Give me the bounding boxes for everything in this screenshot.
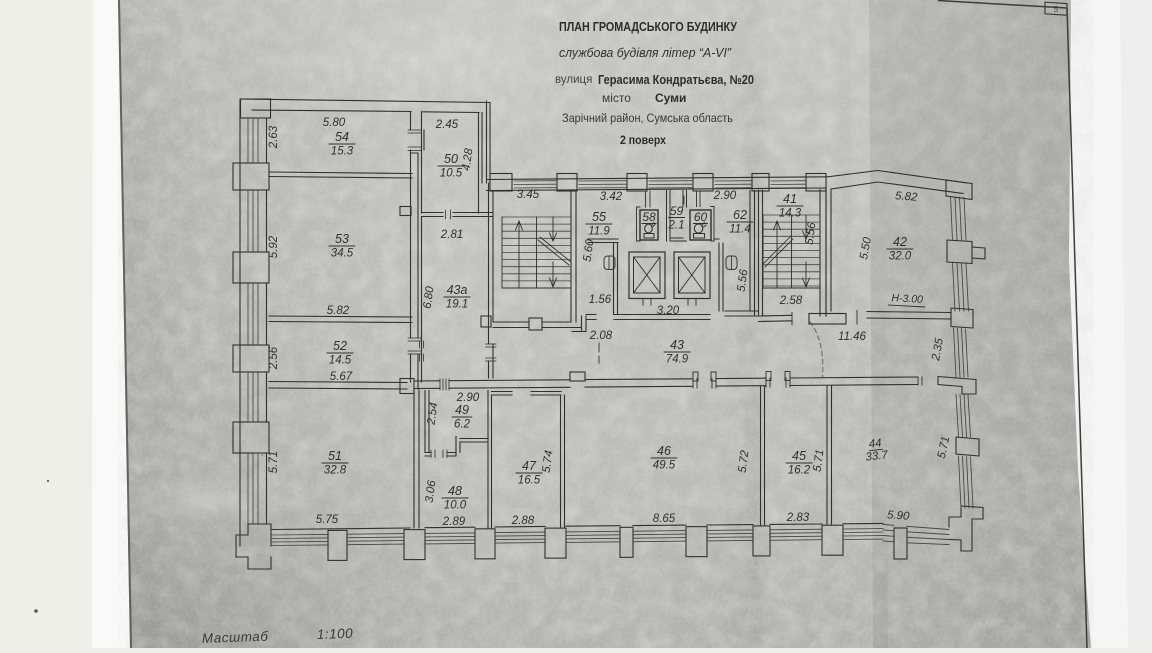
svg-text:59: 59 (670, 204, 684, 218)
svg-text:2.90: 2.90 (713, 190, 737, 202)
svg-text:14.5: 14.5 (329, 355, 352, 367)
svg-text:Зарічний район, Сумська област: Зарічний район, Сумська область (562, 111, 733, 125)
svg-text:32.0: 32.0 (889, 251, 912, 263)
svg-text:14.3: 14.3 (779, 208, 802, 220)
svg-text:47: 47 (522, 459, 537, 473)
svg-text:2.88: 2.88 (511, 515, 535, 527)
svg-text:5.67: 5.67 (330, 371, 353, 383)
svg-text:52: 52 (333, 339, 347, 353)
svg-text:2 поверх: 2 поверх (620, 133, 666, 147)
svg-text:45: 45 (792, 449, 806, 463)
svg-text:5.90: 5.90 (887, 509, 911, 523)
svg-text:34.5: 34.5 (331, 248, 354, 260)
svg-text:5.82: 5.82 (327, 305, 350, 317)
svg-text:41: 41 (783, 192, 797, 206)
svg-text:49.5: 49.5 (653, 460, 676, 472)
svg-text:5.82: 5.82 (895, 190, 919, 204)
svg-text:49: 49 (455, 403, 469, 417)
svg-text:5.80: 5.80 (323, 117, 346, 129)
svg-text:Суми: Суми (655, 91, 686, 105)
svg-text:19.1: 19.1 (446, 299, 468, 311)
svg-text:51: 51 (328, 449, 342, 463)
svg-text:46: 46 (657, 444, 671, 458)
svg-text:10.5: 10.5 (440, 168, 463, 180)
svg-text:ПЛАН ГРОМАДСЬКОГО БУДИНКУ: ПЛАН ГРОМАДСЬКОГО БУДИНКУ (559, 20, 737, 34)
svg-text:Масштаб: Масштаб (202, 629, 269, 646)
svg-text:5.71: 5.71 (268, 451, 280, 473)
svg-text:50: 50 (444, 152, 458, 166)
svg-text:2.56: 2.56 (268, 346, 280, 370)
svg-text:54: 54 (335, 130, 349, 144)
svg-text:53: 53 (335, 232, 349, 246)
svg-text:2.63: 2.63 (268, 125, 280, 149)
svg-text:48: 48 (448, 484, 462, 498)
svg-text:Н-3.00: Н-3.00 (891, 292, 923, 306)
svg-text:43а: 43а (447, 283, 468, 297)
svg-text:2.81: 2.81 (440, 229, 463, 241)
svg-text:службова будівля літер “А-VІ”: службова будівля літер “А-VІ” (559, 46, 732, 60)
svg-text:10.0: 10.0 (444, 500, 467, 512)
svg-text:15.3: 15.3 (331, 146, 354, 158)
svg-text:2.89: 2.89 (442, 516, 466, 528)
svg-text:2.08: 2.08 (589, 330, 613, 342)
svg-text:2.83: 2.83 (786, 512, 810, 524)
svg-text:11.4: 11.4 (729, 224, 751, 236)
svg-text:62: 62 (733, 208, 747, 222)
svg-text:6.2: 6.2 (454, 419, 471, 431)
svg-text:1:100: 1:100 (317, 626, 354, 642)
svg-text:60: 60 (694, 210, 708, 224)
svg-text:вулиця: вулиця (555, 74, 592, 86)
svg-text:74.9: 74.9 (666, 354, 689, 366)
svg-text:32.8: 32.8 (324, 465, 347, 477)
svg-text:Герасима Кондратьєва, №20: Герасима Кондратьєва, №20 (598, 73, 754, 87)
svg-text:11.9: 11.9 (588, 226, 610, 238)
svg-text:58: 58 (642, 210, 656, 224)
svg-text:55: 55 (592, 210, 606, 224)
svg-text:2.45: 2.45 (435, 119, 459, 131)
svg-text:42: 42 (893, 235, 907, 249)
svg-text:8.65: 8.65 (653, 513, 676, 525)
svg-text:2.58: 2.58 (779, 295, 803, 307)
svg-text:16.5: 16.5 (518, 475, 541, 487)
svg-text:2.1: 2.1 (668, 220, 685, 232)
svg-text:43: 43 (670, 338, 684, 352)
svg-text:3.20: 3.20 (657, 305, 680, 317)
svg-text:1.56: 1.56 (589, 294, 612, 306)
svg-text:3.42: 3.42 (600, 191, 623, 203)
svg-text:5.92: 5.92 (268, 235, 280, 258)
svg-text:3.45: 3.45 (517, 189, 540, 201)
svg-text:5: 5 (1054, 4, 1059, 14)
svg-text:місто: місто (602, 91, 631, 105)
svg-text:16.2: 16.2 (788, 465, 811, 477)
svg-text:5.75: 5.75 (316, 514, 339, 526)
svg-text:44: 44 (868, 437, 882, 450)
svg-text:11.46: 11.46 (838, 331, 867, 343)
